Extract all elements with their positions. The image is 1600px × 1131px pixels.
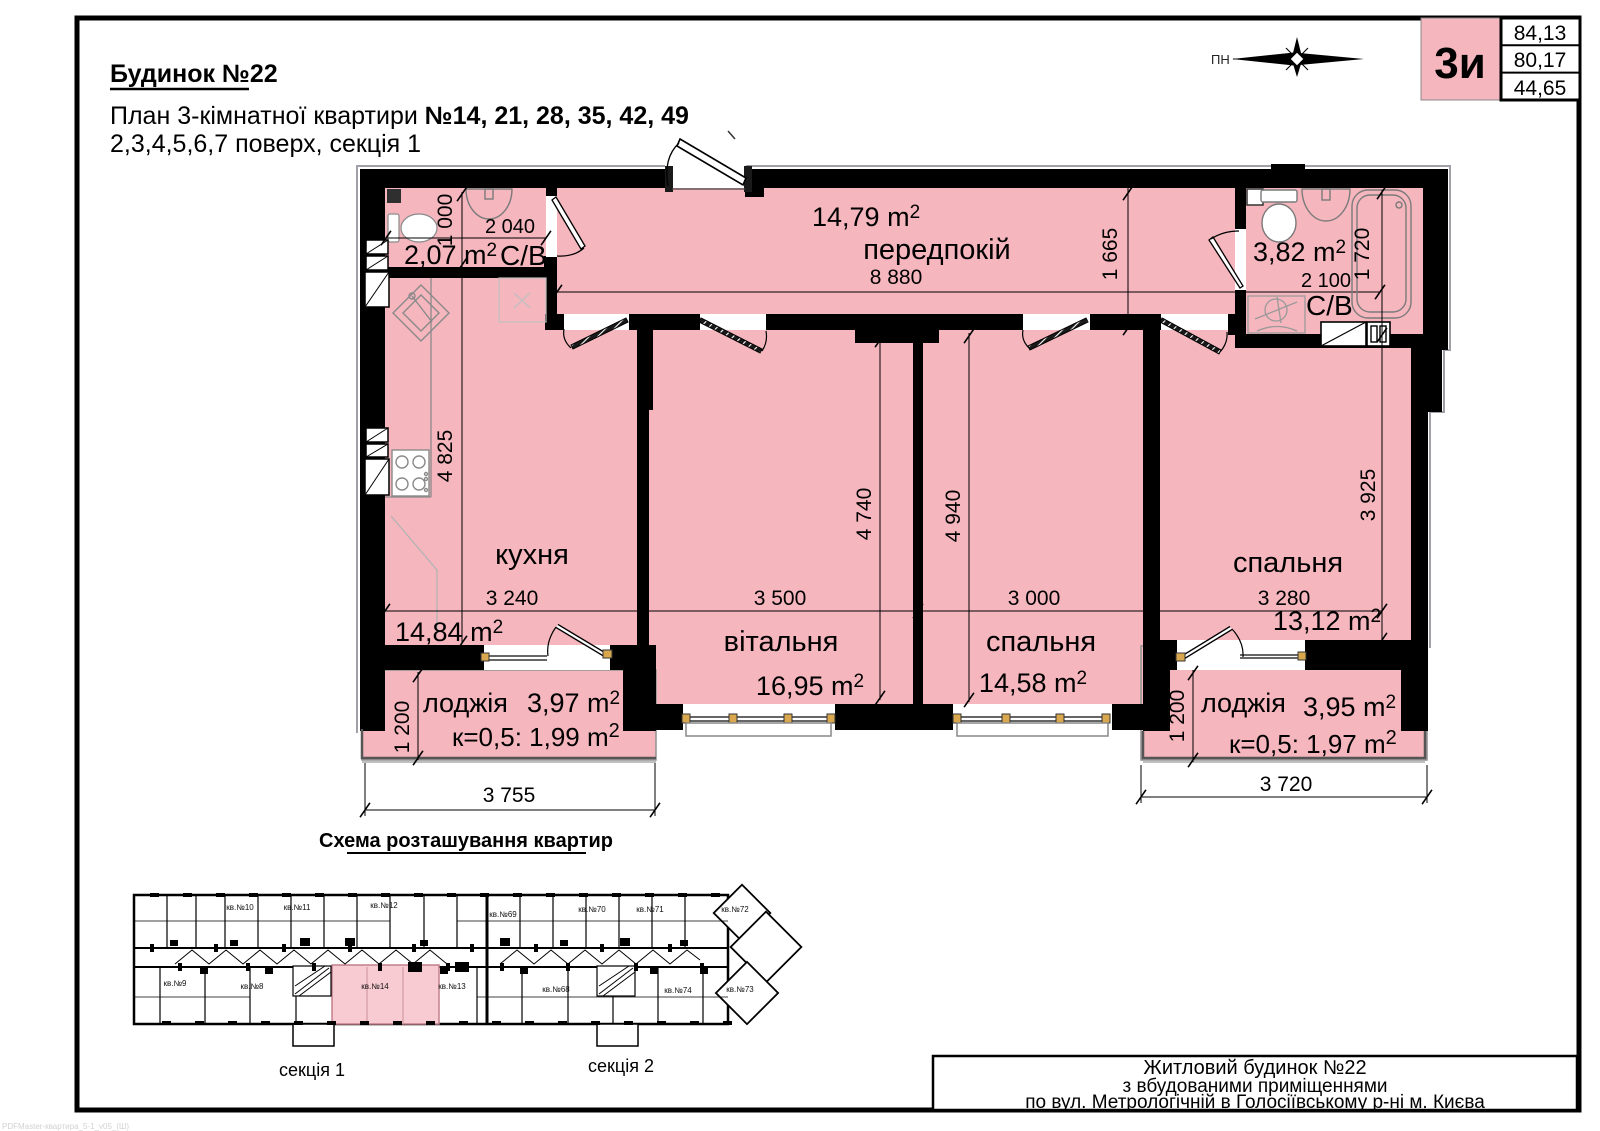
svg-text:кв.№71: кв.№71 [636, 905, 664, 914]
svg-text:кв.№70: кв.№70 [578, 905, 606, 914]
svg-text:3 720: 3 720 [1260, 773, 1313, 796]
svg-text:44,65: 44,65 [1514, 77, 1567, 100]
svg-text:2,3,4,5,6,7 поверх, секція 1: 2,3,4,5,6,7 поверх, секція 1 [110, 130, 421, 158]
svg-text:Схема розташування квартир: Схема розташування квартир [319, 830, 613, 852]
svg-text:2,07 m2: 2,07 m2 [404, 240, 497, 270]
svg-text:14,58 m2: 14,58 m2 [979, 668, 1087, 698]
svg-text:2 040: 2 040 [485, 216, 535, 238]
svg-text:передпокій: передпокій [863, 234, 1011, 266]
svg-text:4 740: 4 740 [853, 488, 876, 541]
svg-text:3 500: 3 500 [754, 587, 807, 610]
svg-text:кв.№72: кв.№72 [721, 905, 749, 914]
svg-text:14,79 m2: 14,79 m2 [812, 202, 920, 232]
svg-text:кв.№68: кв.№68 [542, 985, 570, 994]
svg-text:4 825: 4 825 [434, 430, 457, 483]
svg-text:вітальня: вітальня [724, 626, 839, 658]
svg-text:1 200: 1 200 [1166, 690, 1189, 743]
svg-text:лоджія: лоджія [1201, 688, 1286, 718]
svg-text:кухня: кухня [495, 539, 569, 571]
svg-text:к=0,5: 1,97 m2: к=0,5: 1,97 m2 [1229, 727, 1397, 759]
svg-text:секція 1: секція 1 [279, 1060, 345, 1080]
svg-text:1 200: 1 200 [391, 701, 414, 754]
svg-text:16,95 m2: 16,95 m2 [756, 671, 864, 701]
svg-text:1 665: 1 665 [1099, 228, 1122, 281]
svg-text:3,95 m2: 3,95 m2 [1303, 692, 1396, 722]
svg-text:кв.№73: кв.№73 [726, 985, 754, 994]
svg-text:3,82 m2: 3,82 m2 [1253, 237, 1346, 267]
svg-text:по вул. Метрологічній в Голосі: по вул. Метрологічній в Голосіївському р… [1025, 1092, 1485, 1113]
svg-text:кв.№69: кв.№69 [489, 910, 517, 919]
svg-text:кв.№13: кв.№13 [438, 982, 466, 991]
svg-text:8 880: 8 880 [870, 266, 923, 289]
svg-text:кв.№9: кв.№9 [163, 979, 187, 988]
svg-text:3 240: 3 240 [486, 587, 539, 610]
svg-text:С/В: С/В [1306, 290, 1353, 321]
svg-text:кв.№14: кв.№14 [361, 982, 389, 991]
svg-text:4 940: 4 940 [942, 490, 965, 543]
svg-text:С/В: С/В [500, 240, 547, 271]
svg-text:План 3-кімнатної квартири №14,: План 3-кімнатної квартири №14, 21, 28, 3… [110, 102, 689, 130]
svg-text:3,97 m2: 3,97 m2 [527, 688, 620, 718]
svg-text:кв.№10: кв.№10 [226, 903, 254, 912]
svg-text:лоджія: лоджія [423, 688, 508, 718]
svg-text:3 000: 3 000 [1008, 587, 1061, 610]
svg-text:секція 2: секція 2 [588, 1056, 654, 1076]
svg-text:1 720: 1 720 [1351, 228, 1374, 281]
svg-text:кв.№74: кв.№74 [664, 986, 692, 995]
svg-text:84,13: 84,13 [1514, 22, 1567, 45]
svg-text:кв.№8: кв.№8 [240, 982, 264, 991]
svg-text:13,12 m2: 13,12 m2 [1273, 606, 1381, 636]
svg-text:3и: 3и [1434, 39, 1486, 88]
svg-text:к=0,5: 1,99 m2: к=0,5: 1,99 m2 [452, 720, 620, 752]
svg-text:80,17: 80,17 [1514, 49, 1567, 72]
svg-text:3 755: 3 755 [483, 784, 536, 807]
svg-text:Будинок №22: Будинок №22 [110, 60, 278, 88]
svg-text:3 925: 3 925 [1357, 469, 1380, 522]
svg-text:ПН: ПН [1211, 52, 1230, 67]
svg-text:2 100: 2 100 [1301, 270, 1351, 292]
svg-text:кв.№11: кв.№11 [284, 903, 311, 912]
svg-text:кв.№12: кв.№12 [370, 901, 398, 910]
svg-text:спальня: спальня [1233, 547, 1343, 579]
svg-text:PDFMaster-квартира_5-1_v05_(Ш): PDFMaster-квартира_5-1_v05_(Ш) [2, 1122, 129, 1131]
svg-text:спальня: спальня [986, 626, 1096, 658]
svg-text:14,84 m2: 14,84 m2 [395, 617, 503, 647]
